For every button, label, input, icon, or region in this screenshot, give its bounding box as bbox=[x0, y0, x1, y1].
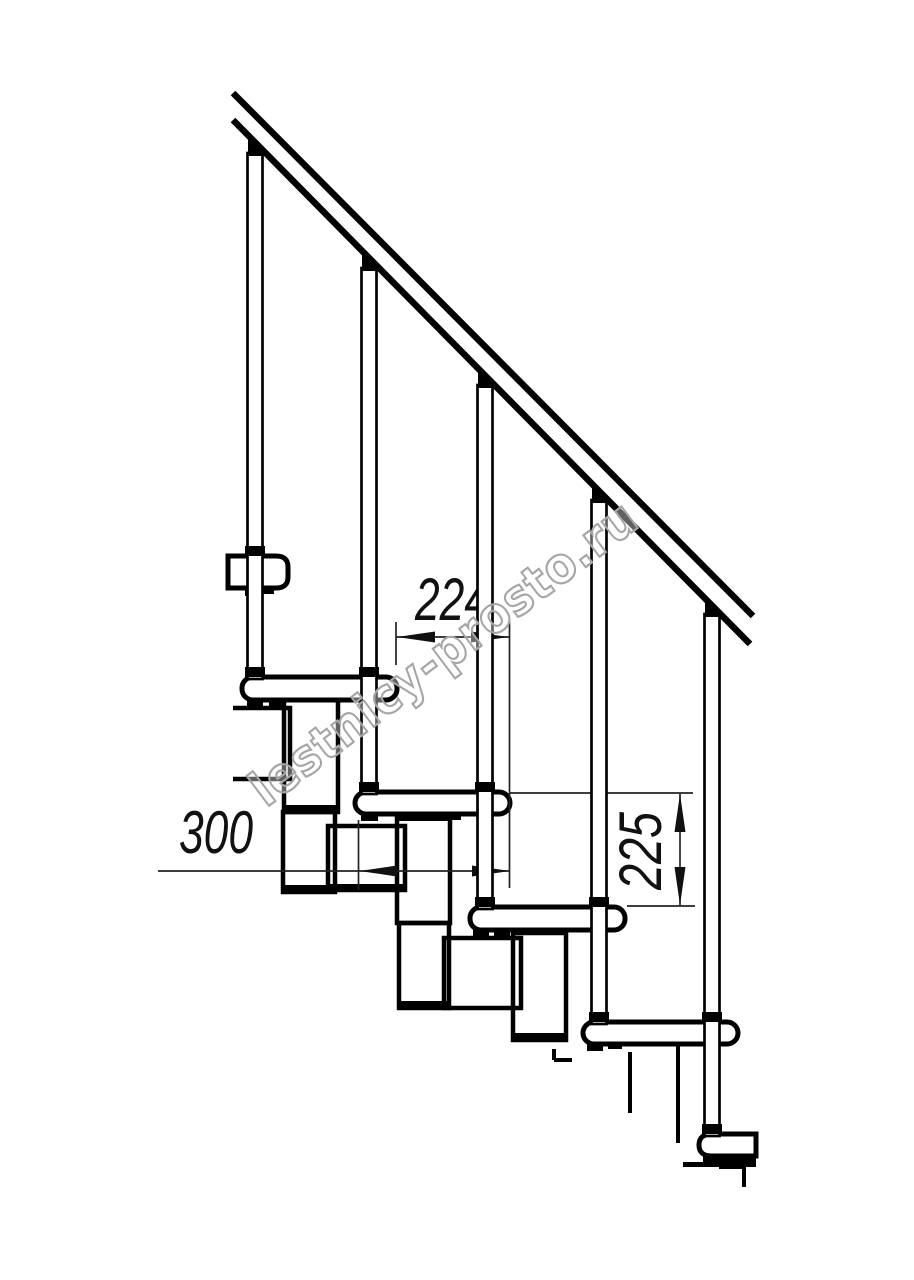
tread-3-fixing bbox=[361, 813, 378, 821]
tread-1-fixing bbox=[263, 588, 274, 594]
arrow-up-icon bbox=[675, 794, 686, 832]
watermark: lestnicy-prosto.ru bbox=[239, 489, 649, 817]
staircase-technical-drawing: 224 300 225 bbox=[0, 0, 914, 1280]
baluster-collar bbox=[245, 546, 265, 556]
baluster-post bbox=[248, 153, 263, 679]
baluster-collar bbox=[475, 897, 495, 907]
dimension-label-module: 300 bbox=[179, 799, 253, 866]
staircase-drawing-page: 224 300 225 bbox=[0, 0, 914, 1280]
baluster-collar bbox=[589, 1012, 609, 1022]
baluster-collar bbox=[589, 897, 609, 907]
module-col-3-band bbox=[513, 1033, 566, 1041]
baluster-post bbox=[592, 500, 607, 1024]
baluster-post bbox=[705, 614, 720, 1136]
module-partial-hook bbox=[554, 1049, 572, 1060]
baluster-collar bbox=[475, 782, 495, 792]
baluster-1 bbox=[245, 135, 265, 679]
baluster-collar bbox=[702, 1012, 722, 1022]
module-bottom-step-line bbox=[719, 1165, 744, 1187]
module-box-2 bbox=[399, 923, 449, 1008]
baluster-collar bbox=[245, 667, 265, 677]
dimensions: 224 300 225 bbox=[158, 566, 695, 906]
tread-4-fixing bbox=[494, 929, 510, 936]
tread-4-fixing bbox=[473, 929, 489, 937]
baluster-5 bbox=[702, 596, 722, 1136]
arrow-down-icon bbox=[675, 867, 686, 905]
module-bridge-2 bbox=[444, 938, 521, 1008]
tread-5-fixing bbox=[608, 1043, 622, 1049]
baluster-collar bbox=[359, 782, 379, 792]
module-bridge-1-band bbox=[330, 884, 405, 890]
module-bridge-1 bbox=[328, 826, 405, 890]
arrow-left-icon bbox=[360, 866, 398, 877]
dimension-label-rise: 225 bbox=[607, 812, 674, 891]
baluster-collar bbox=[702, 1124, 722, 1134]
tread-2-fixing bbox=[247, 699, 263, 708]
tread-5-fixing bbox=[587, 1043, 603, 1051]
tread-2-fixing bbox=[269, 699, 283, 706]
module-box-2-band bbox=[399, 1001, 449, 1009]
tread-3-fixing bbox=[444, 813, 461, 820]
